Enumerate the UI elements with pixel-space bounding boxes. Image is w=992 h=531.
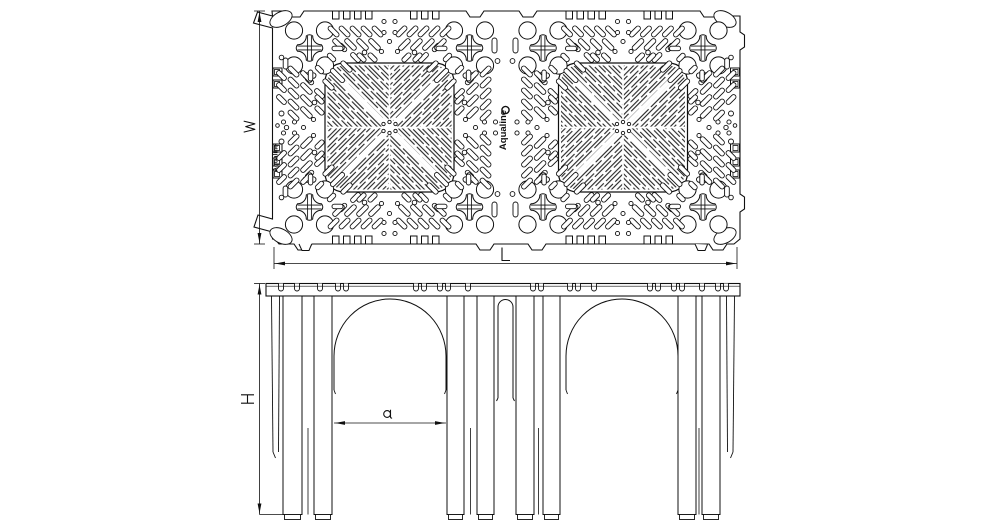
svg-text:Aqualine: Aqualine	[498, 110, 509, 150]
svg-text:Aqualine: Aqualine	[273, 144, 280, 172]
